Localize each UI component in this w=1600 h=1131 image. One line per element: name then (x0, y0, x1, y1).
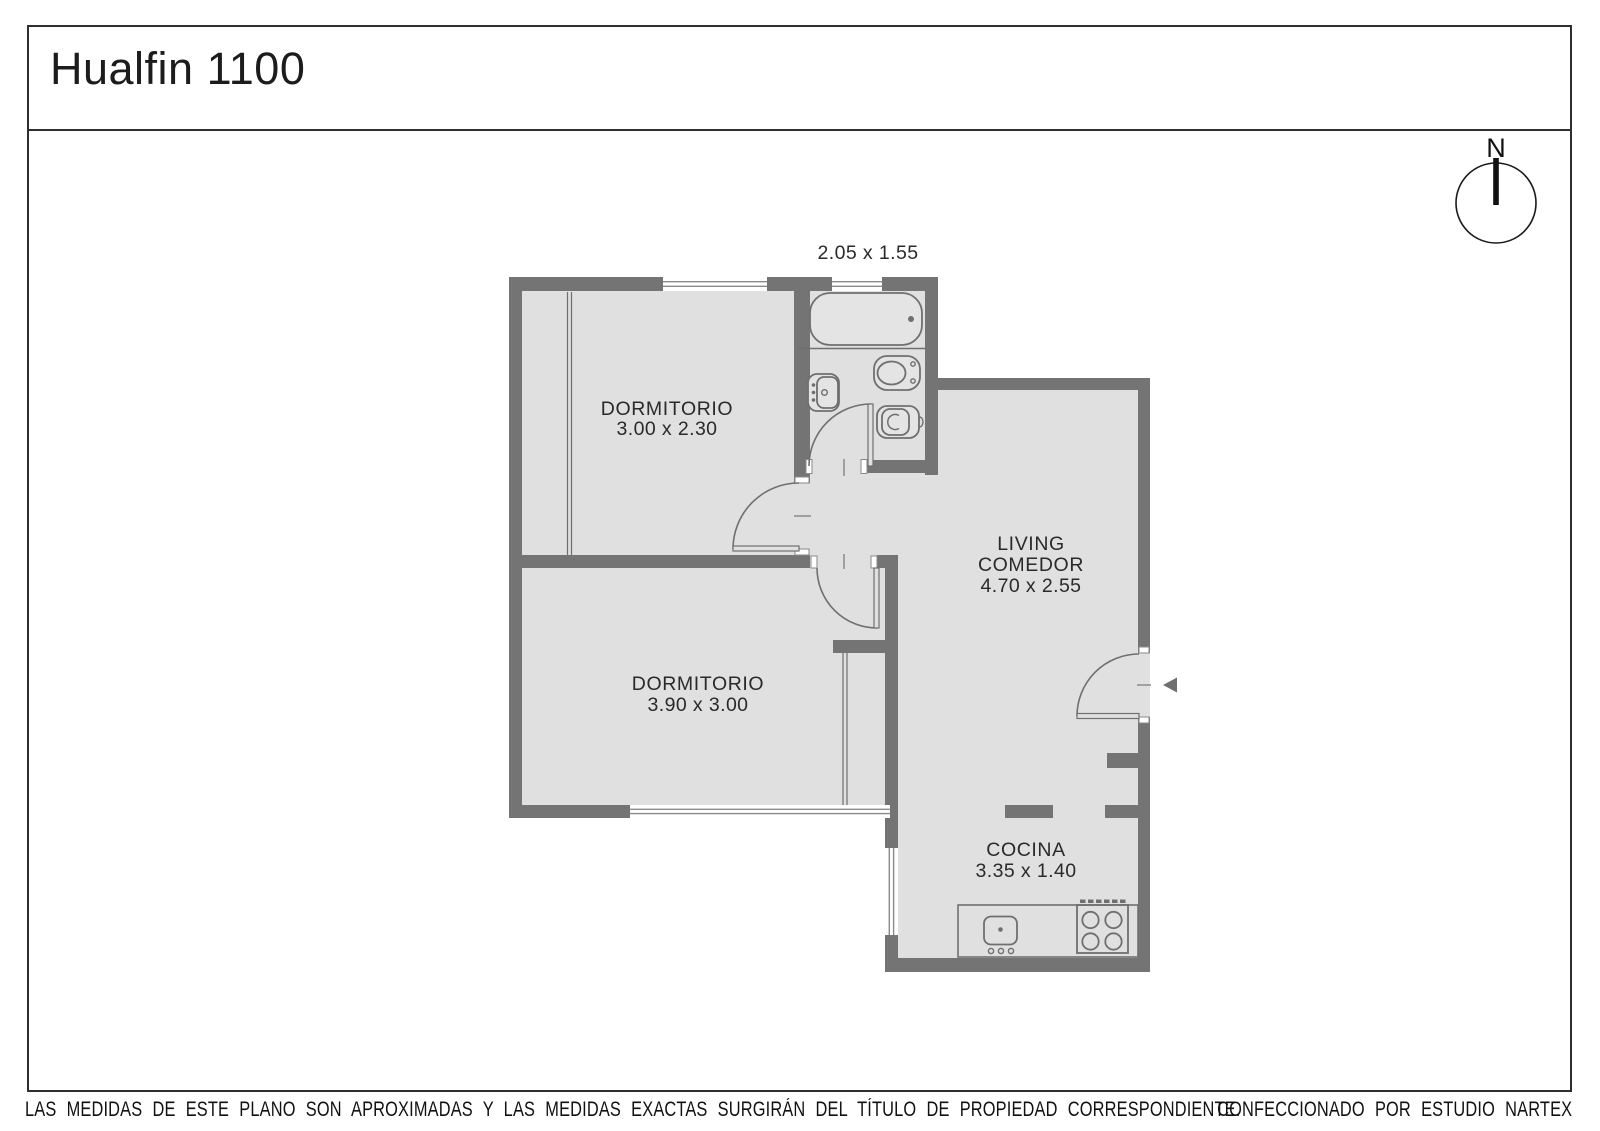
kitchen-name: COCINA (976, 840, 1077, 861)
living-name-line2: COMEDOR (978, 555, 1084, 576)
living-dims: 4.70 x 2.55 (978, 576, 1084, 597)
entrance-arrow-icon (1163, 678, 1177, 693)
label-bedroom2: DORMITORIO 3.90 x 3.00 (632, 674, 764, 716)
compass-north-label: N (1486, 133, 1506, 163)
window-bedroom1 (663, 277, 767, 291)
bathroom-dims: 2.05 x 1.55 (818, 243, 919, 264)
kitchen-dims: 3.35 x 1.40 (976, 861, 1077, 882)
footer-credit: CONFECCIONADO POR ESTUDIO NARTEX (1217, 1098, 1572, 1121)
bedroom1-dims: 3.00 x 2.30 (601, 419, 733, 439)
window-bathroom (832, 277, 882, 291)
floor-plan-drawing: N (0, 0, 1600, 1131)
floor-plan-page: Hualfin 1100 (0, 0, 1600, 1131)
label-bathroom-dims: 2.05 x 1.55 (818, 243, 919, 264)
north-compass-icon: N (1456, 133, 1536, 243)
footer-disclaimer: LAS MEDIDAS DE ESTE PLANO SON APROXIMADA… (25, 1098, 1240, 1121)
bathroom-sink (808, 374, 839, 411)
label-bedroom1: DORMITORIO 3.00 x 2.30 (601, 399, 733, 439)
toilet (877, 406, 923, 438)
bedroom1-name: DORMITORIO (601, 399, 733, 419)
label-kitchen: COCINA 3.35 x 1.40 (976, 840, 1077, 882)
bedroom2-name: DORMITORIO (632, 674, 764, 695)
label-living: LIVING COMEDOR 4.70 x 2.55 (978, 534, 1084, 597)
bedroom2-dims: 3.90 x 3.00 (632, 695, 764, 716)
bidet (874, 356, 920, 390)
living-name-line1: LIVING (978, 534, 1084, 555)
window-bedroom2 (630, 805, 890, 818)
window-kitchen (885, 848, 898, 935)
bathtub (810, 293, 922, 345)
